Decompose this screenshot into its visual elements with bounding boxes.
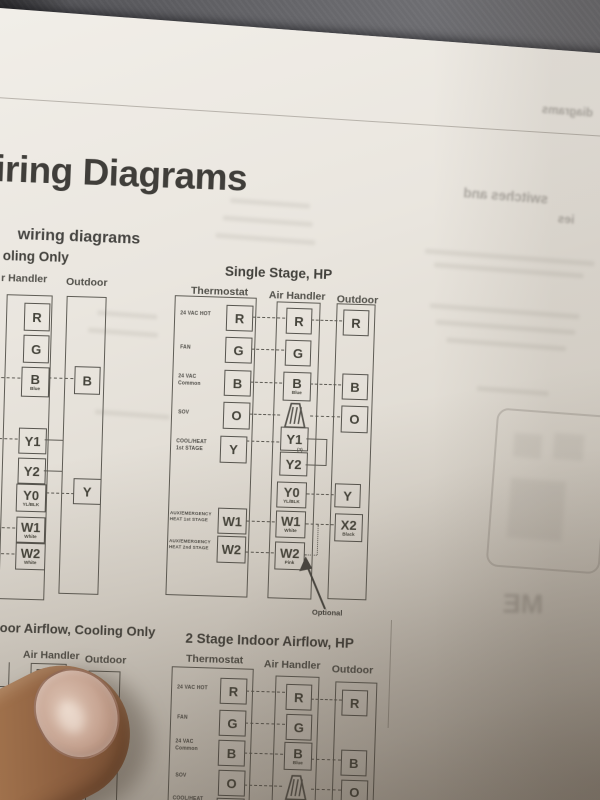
terminal-box: B	[74, 366, 101, 395]
terminal-label: Y	[83, 485, 92, 498]
column-label-outdoor: Outdoor	[66, 276, 108, 289]
bleed-paragraph	[446, 337, 566, 351]
optional-label: Optional	[312, 608, 343, 618]
wire-dash	[0, 377, 20, 379]
row-label: AUX/EMERGENCYHEAT 1st STAGE	[170, 510, 212, 523]
terminal-label: Y1	[24, 434, 40, 447]
bleed-paragraph	[435, 320, 575, 335]
terminal-label: O	[349, 785, 360, 798]
bleed-paragraph	[215, 233, 315, 245]
terminal-box: W2	[216, 536, 246, 564]
terminal-box: G	[286, 714, 313, 741]
terminal-sublabel: Blue	[293, 761, 303, 766]
terminal-sublabel: Black	[342, 532, 354, 537]
terminal-box: BBlue	[21, 367, 50, 398]
column-label-air-handler: Air Handler	[23, 649, 80, 663]
terminal-label: G	[293, 346, 304, 359]
terminal-label: G	[294, 721, 305, 734]
wire-dash	[250, 382, 282, 384]
terminal-label: B	[292, 377, 302, 390]
terminal-box: W1	[217, 508, 247, 535]
crease-line	[0, 97, 600, 139]
terminal-label: B	[227, 747, 237, 760]
terminal-label: O	[349, 413, 360, 426]
diagram-title: oling Only	[3, 248, 69, 265]
terminal-box: O	[218, 770, 246, 797]
terminal-sublabel: YL/BLK	[283, 499, 300, 504]
y-bracket	[306, 438, 328, 466]
terminal-box: O	[223, 402, 251, 430]
terminal-box: R	[285, 684, 312, 711]
row-label: AUX/EMERGENCYHEAT 2nd STAGE	[169, 538, 211, 551]
stage-note: (3)	[297, 447, 303, 452]
terminal-label: B	[30, 373, 40, 386]
terminal-label: O	[231, 409, 242, 422]
terminal-label: W1	[281, 515, 301, 529]
terminal-label: R	[350, 696, 360, 709]
qr-code-bleed-block	[553, 433, 585, 461]
diagram-single-stage-hp: Single Stage, HP Thermostat Air Handler …	[159, 258, 400, 630]
terminal-box: B	[342, 373, 369, 400]
terminal-box: R	[343, 309, 370, 336]
row-label: SOV	[178, 409, 189, 416]
terminal-box: B	[340, 750, 367, 777]
terminal-box: W1White	[16, 517, 46, 544]
bleed-paragraph	[477, 386, 549, 396]
terminal-label: B	[349, 756, 359, 769]
photo-of-manual-page: diagrams switches and ies ME iring Diagr…	[0, 0, 600, 800]
vent-icon	[281, 402, 310, 430]
bleed-text: switches and	[463, 185, 549, 206]
wire-dash	[48, 377, 73, 379]
row-label: SOV	[175, 772, 186, 779]
wire-dash	[247, 521, 275, 523]
bleed-text: ME	[502, 588, 543, 620]
terminal-label: W2	[221, 543, 241, 557]
column-label-outdoor: Outdoor	[85, 653, 127, 666]
diagram-title: 2 Stage Indoor Airflow, HP	[174, 630, 364, 651]
terminal-label: W1	[21, 520, 41, 534]
terminal-sublabel: White	[24, 561, 37, 566]
terminal-box: G	[285, 340, 312, 367]
terminal-box: O	[341, 780, 369, 800]
terminal-label: G	[227, 717, 238, 730]
terminal-box: R	[226, 305, 254, 332]
terminal-sublabel: White	[24, 534, 37, 539]
qr-code-bleed-block	[513, 433, 543, 459]
terminal-label: B	[233, 377, 243, 390]
terminal-box: R	[341, 690, 368, 717]
wire-dash	[249, 414, 280, 416]
terminal-label: R	[235, 312, 245, 325]
row-label: FAN	[177, 714, 188, 721]
terminal-box: G	[23, 335, 50, 364]
terminal-box: G	[219, 710, 247, 737]
row-label: 24 VAC HOT	[180, 310, 211, 318]
bleed-text: diagrams	[541, 104, 593, 120]
terminal-box: Y0YL/BLK	[16, 484, 47, 513]
terminal-label: R	[229, 685, 239, 698]
terminal-label: O	[226, 777, 237, 790]
vent-icon	[282, 774, 311, 800]
terminal-label: B	[350, 380, 360, 393]
column-label-air-handler: Air Handler	[264, 658, 321, 672]
terminal-box: W2White	[15, 543, 46, 571]
diagram-title: oor Airflow, Cooling Only	[0, 620, 156, 639]
diagram-cooling-only: oling Only r Handler Outdoor R G BBlue Y…	[0, 248, 150, 612]
terminal-box: R	[286, 308, 313, 335]
row-label: COOL/HEAT1st STAGE	[176, 438, 207, 452]
row-label: COOL/HEAT	[173, 795, 204, 800]
terminal-box: BBlue	[284, 742, 313, 771]
diagram-title: Single Stage, HP	[183, 262, 373, 283]
terminal-label: R	[294, 691, 304, 704]
terminal-label: Y2	[24, 464, 40, 477]
terminal-sublabel: YL/BLK	[22, 502, 39, 507]
terminal-label: B	[293, 747, 303, 760]
terminal-label: R	[351, 316, 361, 329]
terminal-box: X2Black	[334, 513, 363, 542]
terminal-label: Y2	[285, 457, 301, 470]
y-bracket	[44, 439, 64, 472]
wire-dot	[317, 525, 319, 555]
terminal-box: Y2	[279, 452, 308, 477]
terminal-box: R	[220, 678, 248, 705]
terminal-sublabel: Blue	[292, 391, 302, 396]
terminal-label: G	[31, 342, 41, 355]
row-label: FAN	[180, 344, 191, 351]
wire-dash	[252, 317, 285, 319]
terminal-label: W1	[222, 514, 242, 528]
wire-dash	[246, 552, 274, 554]
terminal-box: Y	[220, 436, 248, 464]
terminal-label: B	[82, 374, 92, 387]
terminal-box: Y1	[280, 427, 309, 452]
bleed-paragraph	[430, 303, 580, 319]
bleed-paragraph	[434, 262, 584, 278]
terminal-box: Y	[334, 483, 361, 508]
column-label-air-handler: r Handler	[1, 272, 47, 285]
terminal-box: Y0YL/BLK	[276, 481, 307, 508]
terminal-sublabel: Blue	[30, 387, 40, 392]
terminal-box: O	[341, 405, 369, 433]
row-label: 24 VACCommon	[178, 373, 201, 387]
row-label: 24 VACCommon	[175, 738, 198, 752]
terminal-box: G	[225, 337, 253, 364]
terminal-label: Y	[343, 489, 352, 502]
terminal-label: Y1	[286, 432, 302, 445]
terminal-sublabel: White	[284, 529, 297, 534]
terminal-box: B	[224, 370, 252, 397]
qr-code-bleed-block	[507, 478, 566, 542]
terminal-label: R	[294, 314, 304, 327]
wire-dash	[251, 349, 284, 351]
terminal-box: Y2	[17, 458, 46, 485]
terminal-label: X2	[341, 518, 357, 531]
terminal-label: R	[32, 310, 42, 323]
terminal-box: Y1	[18, 428, 47, 455]
terminal-box: BBlue	[283, 372, 312, 402]
terminal-label: G	[233, 344, 244, 357]
column-label-outdoor: Outdoor	[332, 663, 374, 676]
bleed-paragraph	[223, 215, 313, 227]
outdoor-column-box	[58, 296, 106, 595]
terminal-box: W1White	[275, 510, 306, 538]
terminal-label: Y0	[23, 488, 39, 501]
terminal-box: R	[24, 303, 51, 332]
column-label-thermostat: Thermostat	[186, 653, 244, 667]
terminal-label: Y	[229, 443, 238, 456]
row-label: 24 VAC HOT	[177, 684, 208, 692]
diagram-two-stage-hp: 2 Stage Indoor Airflow, HP Thermostat Ai…	[159, 628, 395, 800]
terminal-box: B	[218, 740, 246, 767]
terminal-label: Y0	[284, 485, 300, 498]
terminal-label: W2	[21, 547, 41, 561]
terminal-box: Y	[73, 478, 102, 505]
bleed-text: ies	[557, 211, 575, 226]
